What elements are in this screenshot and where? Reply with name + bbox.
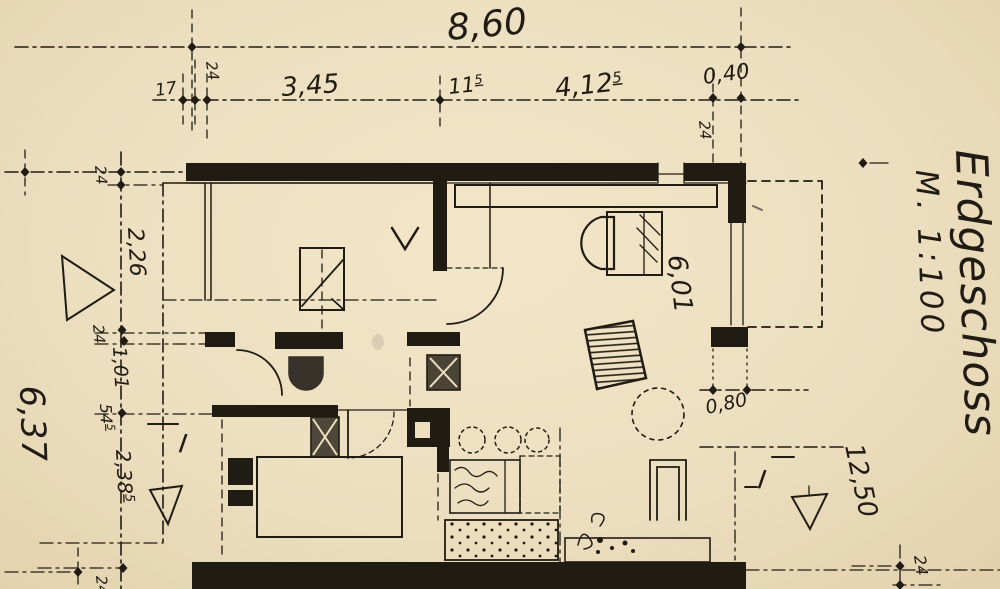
bottom-wall (192, 562, 746, 589)
dim-room-width: 6,01 (661, 253, 698, 314)
dim-24-wall-right: 24 (695, 120, 715, 141)
dim-545: 545 (96, 403, 117, 431)
shower (311, 417, 339, 457)
desk-chair (581, 217, 614, 269)
dim-24-left-b: 24 (89, 324, 109, 345)
wc-pier-c (407, 332, 460, 346)
rug (585, 321, 646, 389)
plant-scribble (578, 514, 635, 554)
bed (257, 457, 402, 537)
lounge-chair (650, 460, 686, 520)
kitchen-pier-b (228, 490, 253, 506)
dim-17: 17 (154, 78, 178, 101)
planter-right (565, 538, 710, 562)
kitchen-door-arc (348, 412, 394, 458)
dim-115: 115 (447, 71, 484, 99)
triangle-bottom-left (150, 486, 182, 524)
wc-pier-a (205, 332, 235, 347)
wc-door-arc (237, 350, 282, 395)
sideboard (455, 185, 717, 207)
dim-24-left-c: 24 (92, 575, 112, 589)
wc-pier-b (275, 332, 343, 349)
triangle-right (792, 494, 827, 529)
kitchen-ring-2 (495, 427, 521, 453)
dim-24-left-a: 24 (91, 165, 111, 186)
plan-title: Erdgeschoss (945, 149, 1000, 438)
interior-wall (212, 405, 338, 417)
dim-040: 0,40 (701, 59, 751, 89)
dim-2385: 2,385 (111, 449, 138, 503)
entry-door-arc (447, 268, 503, 324)
kitchen-ring-1 (459, 427, 485, 453)
entry-wall (433, 181, 447, 271)
dim-24-right: 24 (910, 554, 932, 577)
dim-226: 2,26 (122, 227, 150, 277)
plan-scale: M. 1:100 (908, 169, 950, 338)
dim-4125: 4,125 (554, 67, 624, 104)
entrance-arrow (392, 228, 418, 249)
kitchen-ring-3 (525, 428, 549, 452)
top-wall-left (186, 163, 658, 181)
dim-top-total: 8,60 (445, 1, 528, 49)
round-table (632, 388, 684, 440)
title-block: Erdgeschoss M. 1:100 (908, 149, 1000, 438)
floor-plan-sheet: 8,60 17 24 3,45 115 4,125 0,40 24 24 2,2… (0, 0, 1000, 589)
dim-101: 1,01 (108, 346, 132, 389)
triangle-left (62, 256, 114, 320)
dimension-nodes (21, 42, 905, 589)
top-wall-right (684, 163, 746, 181)
desk (607, 212, 662, 275)
planter-bottom (445, 520, 558, 560)
window-right (731, 223, 743, 325)
dim-left-total: 6,37 (11, 385, 54, 462)
washbasin (427, 355, 460, 390)
dim-1250: 12,50 (838, 441, 883, 520)
dim-080: 0,80 (703, 389, 749, 419)
section-marker-right: I (756, 465, 768, 496)
dim-345: 3,45 (280, 69, 340, 103)
kitchen-pier-a (228, 458, 253, 485)
furniture (257, 185, 717, 562)
pier-right-mid (711, 327, 748, 347)
section-marker-left: I (177, 429, 189, 460)
corner-pier-right (728, 181, 746, 223)
toilet (289, 357, 323, 390)
floor-plan-canvas: 8,60 17 24 3,45 115 4,125 0,40 24 24 2,2… (0, 0, 1000, 589)
dim-24-top: 24 (202, 60, 222, 81)
